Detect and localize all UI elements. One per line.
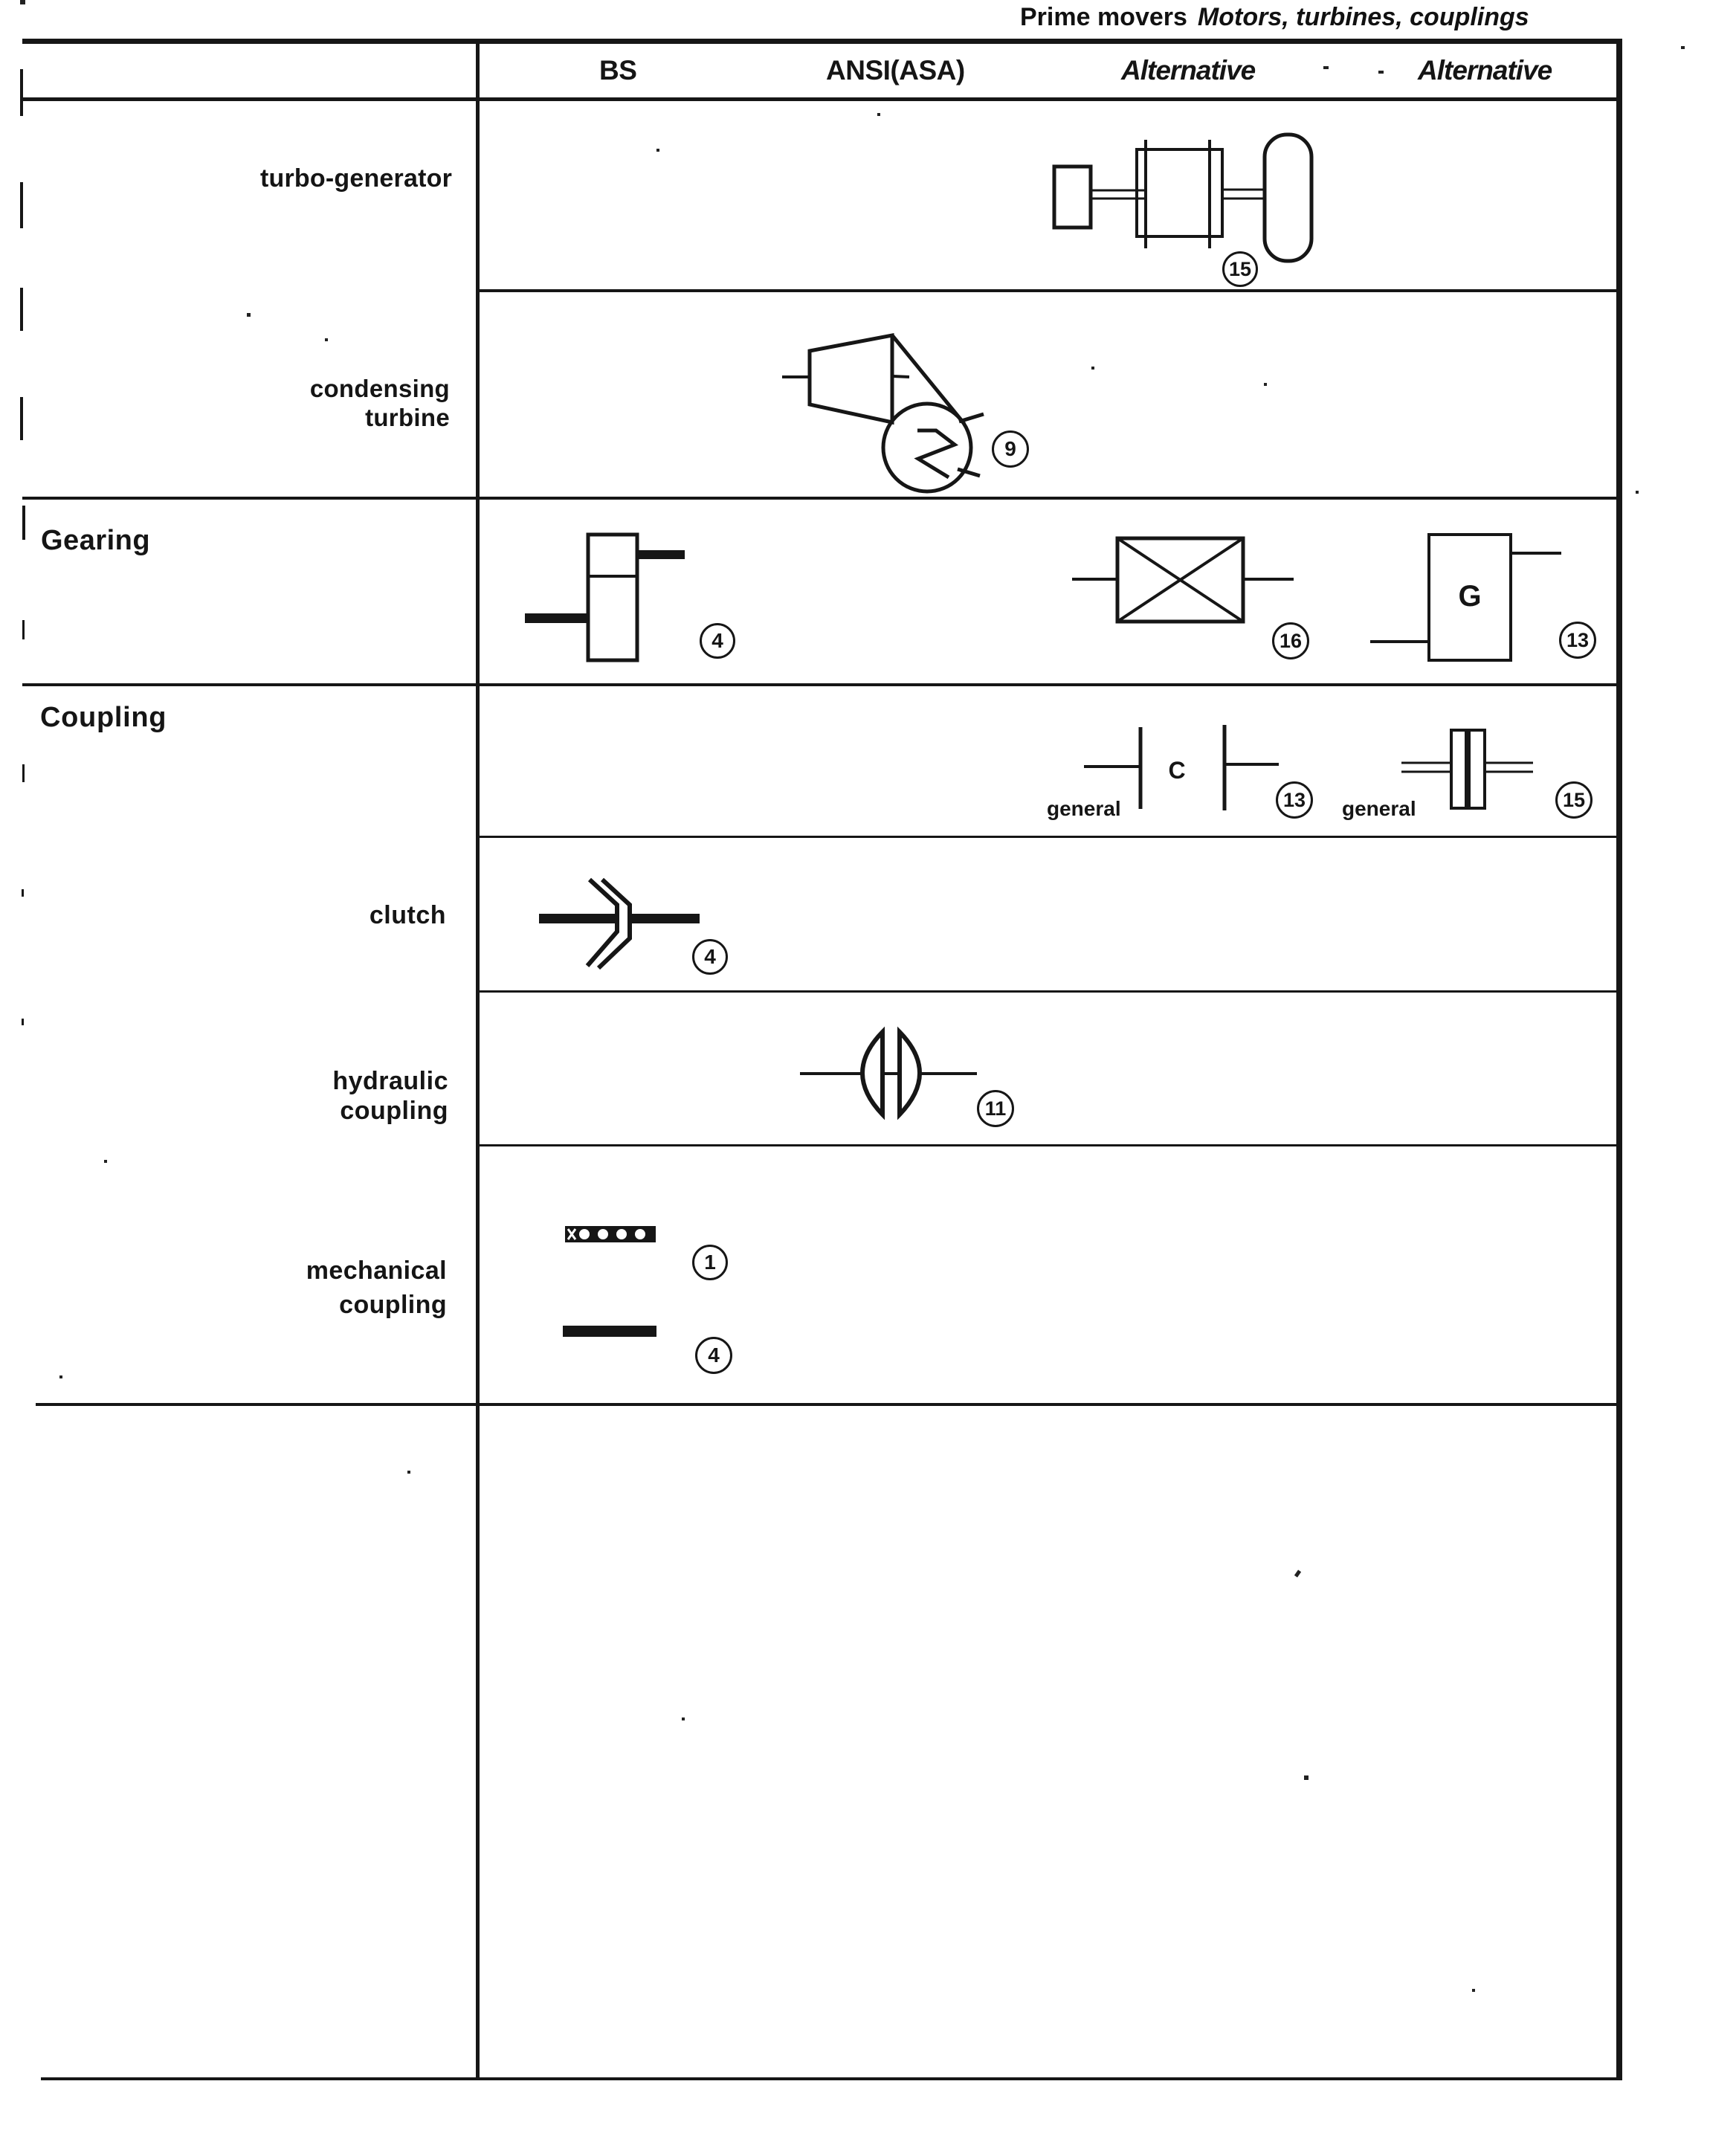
svg-text:C: C xyxy=(1168,757,1185,784)
svg-text:G: G xyxy=(1458,580,1481,613)
